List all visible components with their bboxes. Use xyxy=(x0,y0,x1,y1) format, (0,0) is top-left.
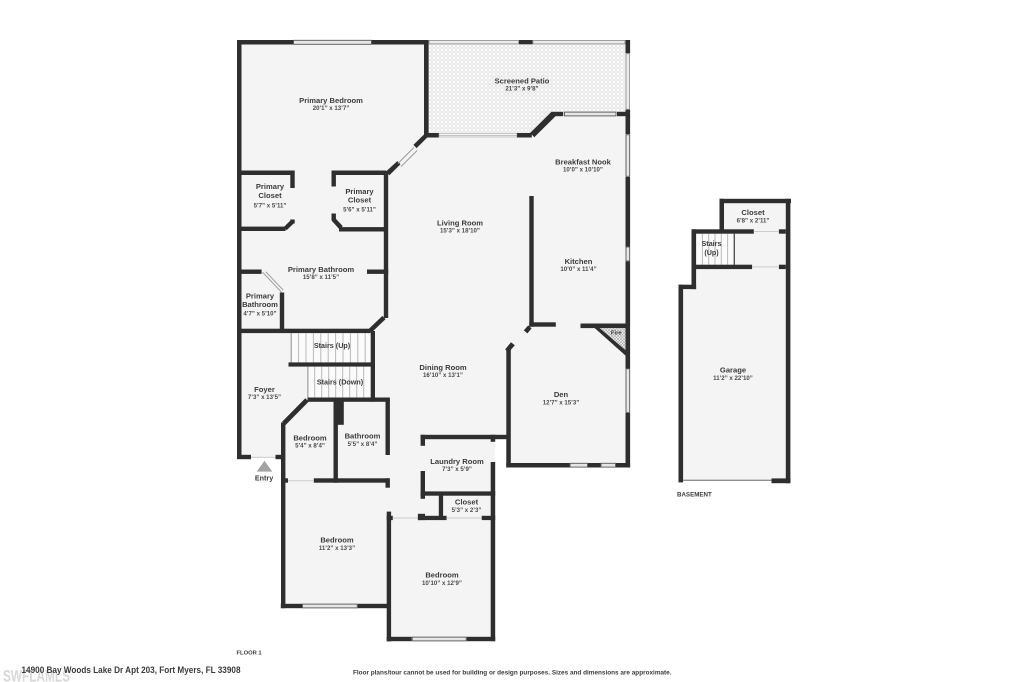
svg-text:Breakfast Nook: Breakfast Nook xyxy=(555,158,611,167)
svg-text:Foyer: Foyer xyxy=(254,385,275,394)
svg-text:Stairs: Stairs xyxy=(702,239,722,248)
svg-text:14900 Bay Woods Lake Dr Apt 20: 14900 Bay Woods Lake Dr Apt 203, Fort My… xyxy=(22,665,242,676)
svg-text:Closet: Closet xyxy=(258,191,282,200)
svg-text:7’3” x 13’5”: 7’3” x 13’5” xyxy=(248,394,281,401)
svg-text:Bedroom: Bedroom xyxy=(293,433,327,442)
svg-text:21’3” x 9’8”: 21’3” x 9’8” xyxy=(505,86,538,93)
svg-text:Fire: Fire xyxy=(611,331,623,337)
svg-text:16’10” x 13’1”: 16’10” x 13’1” xyxy=(423,372,463,379)
svg-text:Living Room: Living Room xyxy=(437,219,483,228)
svg-text:5’5” x 8’4”: 5’5” x 8’4” xyxy=(348,441,378,448)
svg-text:Kitchen: Kitchen xyxy=(565,257,593,266)
svg-text:5’3” x 2’3”: 5’3” x 2’3” xyxy=(452,507,482,514)
svg-text:Primary: Primary xyxy=(256,182,285,191)
svg-text:6’8” x 2’11”: 6’8” x 2’11” xyxy=(737,217,770,224)
svg-text:Laundry Room: Laundry Room xyxy=(430,457,484,466)
svg-text:FLOOR 1: FLOOR 1 xyxy=(237,651,263,657)
svg-text:Stairs (Up): Stairs (Up) xyxy=(314,341,351,350)
svg-text:Closet: Closet xyxy=(455,497,479,506)
svg-text:Screened Patio: Screened Patio xyxy=(495,77,550,86)
svg-text:Bathroom: Bathroom xyxy=(345,432,381,441)
svg-text:10’0” x 10’10”: 10’0” x 10’10” xyxy=(563,167,603,174)
svg-text:Den: Den xyxy=(554,390,569,399)
svg-text:Dining Room: Dining Room xyxy=(419,363,466,372)
svg-text:4’7” x 5’10”: 4’7” x 5’10” xyxy=(243,310,276,317)
svg-text:Stairs (Down): Stairs (Down) xyxy=(317,378,364,387)
svg-text:20’1” x 13’7”: 20’1” x 13’7” xyxy=(313,105,350,112)
svg-text:Primary Bedroom: Primary Bedroom xyxy=(299,96,363,105)
svg-text:10’10” x 12’9”: 10’10” x 12’9” xyxy=(422,580,462,587)
svg-text:10’0” x 11’4”: 10’0” x 11’4” xyxy=(560,266,596,273)
svg-text:12’7” x 15’3”: 12’7” x 15’3” xyxy=(543,399,580,406)
svg-text:15’3” x 18’10”: 15’3” x 18’10” xyxy=(440,228,480,235)
svg-text:5’4” x 8’4”: 5’4” x 8’4” xyxy=(295,443,325,450)
svg-text:Closet: Closet xyxy=(348,196,372,205)
svg-text:Bedroom: Bedroom xyxy=(425,571,459,580)
svg-text:Entry: Entry xyxy=(255,474,273,483)
svg-text:7’3” x 5’9”: 7’3” x 5’9” xyxy=(442,466,472,473)
svg-text:BASEMENT: BASEMENT xyxy=(677,492,712,499)
svg-text:15’8” x 11’5”: 15’8” x 11’5” xyxy=(303,274,339,281)
svg-text:Primary Bathroom: Primary Bathroom xyxy=(288,265,355,274)
svg-text:Garage: Garage xyxy=(720,366,746,375)
svg-text:5’7” x 5’11”: 5’7” x 5’11” xyxy=(254,203,287,210)
svg-text:Floor plans/tour cannot be use: Floor plans/tour cannot be used for buil… xyxy=(353,670,672,677)
svg-text:11’2” x 22’10”: 11’2” x 22’10” xyxy=(713,375,753,382)
svg-text:Bathroom: Bathroom xyxy=(242,300,278,309)
svg-text:Bedroom: Bedroom xyxy=(320,536,354,545)
svg-text:(Up): (Up) xyxy=(704,248,719,257)
svg-text:Closet: Closet xyxy=(741,208,765,217)
svg-text:5’6” x 5’11”: 5’6” x 5’11” xyxy=(343,206,376,213)
svg-text:11’2” x 13’3”: 11’2” x 13’3” xyxy=(319,545,355,552)
